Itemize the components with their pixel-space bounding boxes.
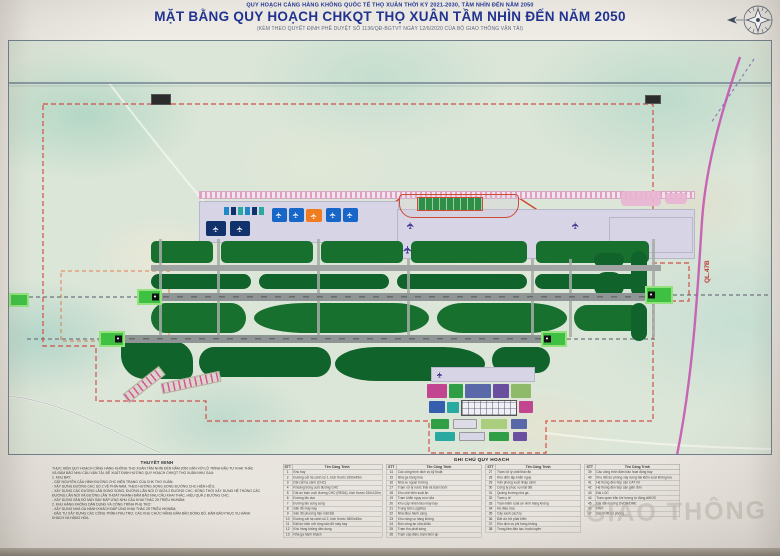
plane-icon: ✈ bbox=[310, 212, 318, 219]
infield-green bbox=[411, 241, 527, 263]
maintenance-stand: ✈ bbox=[206, 221, 226, 236]
cluster-block bbox=[431, 419, 449, 429]
notes-heading: THUYẾT MINH bbox=[52, 460, 262, 465]
poster-paper: QUY HOẠCH CẢNG HÀNG KHÔNG QUỐC TẾ THỌ XU… bbox=[0, 0, 780, 549]
legend-row-name: Trạm cấp điện, trạm biến áp bbox=[397, 532, 482, 537]
taxiway-connector bbox=[317, 239, 320, 337]
widebody-stand: ✈ bbox=[343, 208, 358, 222]
taxiway-connector bbox=[217, 239, 220, 337]
infield-green bbox=[151, 303, 246, 333]
cluster-block bbox=[481, 419, 507, 429]
infield-green bbox=[437, 303, 567, 333]
parallel-taxiway bbox=[151, 265, 661, 271]
infield-green bbox=[151, 274, 251, 289]
legend-group: STTTên Công Trình14Các công trình dịch v… bbox=[386, 464, 482, 538]
cluster-block bbox=[493, 384, 509, 398]
cluster-block bbox=[449, 384, 463, 398]
taxiway-connector bbox=[159, 239, 162, 337]
small-stand bbox=[231, 207, 236, 215]
future-terminal-area bbox=[665, 193, 687, 204]
cluster-block bbox=[489, 432, 509, 441]
landside-cluster: ✈✈✈✈✈✈✈✈✈ bbox=[427, 367, 545, 455]
cluster-block bbox=[429, 401, 445, 413]
cluster-block bbox=[435, 432, 455, 441]
infield-green bbox=[631, 303, 647, 341]
infield-green bbox=[259, 274, 389, 289]
road-label-ql47b: QL.47B bbox=[704, 260, 711, 283]
notes-line: KHÁCH VÀ HÀNG HÓA. bbox=[52, 516, 262, 521]
plane-icon: ✈ bbox=[436, 368, 444, 378]
threshold-marker bbox=[544, 336, 551, 343]
master-plan-map: QL.47B ✈ ✈ ✈ ✈ ✈ ✈ ✈ ✈✈✈✈✈✈✈✈ ✈✈✈✈✈ bbox=[8, 40, 772, 455]
page-title: MẶT BẰNG QUY HOẠCH CHKQT THỌ XUÂN TẦM NH… bbox=[0, 9, 780, 25]
runway-1 bbox=[149, 293, 663, 301]
small-stand bbox=[224, 207, 229, 215]
plane-icon: ✈ bbox=[212, 225, 220, 232]
plane-icon: ✈ bbox=[346, 212, 354, 219]
notes-block: THUYẾT MINH THỰC HIỆN QUY HOẠCH CẢNG HÀN… bbox=[52, 460, 262, 546]
widebody-stand-orange: ✈ bbox=[306, 209, 322, 222]
legend-title: GHI CHÚ QUY HOẠCH bbox=[283, 457, 680, 463]
road-structure bbox=[645, 95, 661, 104]
small-stand bbox=[259, 207, 264, 215]
watermark-text: GIAO THÔNG bbox=[586, 496, 768, 528]
cluster-block bbox=[511, 384, 531, 398]
small-stand bbox=[252, 207, 257, 215]
compass-rose-icon bbox=[720, 1, 778, 39]
runway-threshold bbox=[541, 331, 567, 347]
threshold-marker bbox=[648, 292, 655, 299]
runway-threshold bbox=[9, 293, 29, 307]
legend-row: 26Trạm cấp điện, trạm biến áp bbox=[386, 532, 481, 537]
cluster-block bbox=[465, 384, 491, 398]
cluster-block bbox=[447, 402, 459, 413]
infield-green bbox=[254, 303, 429, 333]
legend-group: STTTên Công Trình27Trạm xử lý chất thải … bbox=[485, 464, 581, 538]
widebody-stand: ✈ bbox=[289, 208, 304, 222]
legend-row-no: 38 bbox=[485, 527, 496, 532]
plane-icon: ✈ bbox=[236, 225, 244, 232]
cluster-block bbox=[453, 419, 477, 429]
plane-icon: ✈ bbox=[292, 212, 300, 219]
cluster-block bbox=[511, 419, 527, 429]
runway-threshold bbox=[99, 331, 125, 347]
infield-green bbox=[397, 274, 527, 289]
small-stand bbox=[245, 207, 250, 215]
legend-row: 38Trung tâm đào tạo, huấn luyện bbox=[485, 527, 580, 532]
road-structure bbox=[151, 94, 171, 105]
runway-threshold bbox=[645, 286, 673, 304]
title-line-1: QUY HOẠCH CẢNG HÀNG KHÔNG QUỐC TẾ THỌ XU… bbox=[0, 2, 780, 8]
passenger-terminal bbox=[417, 197, 483, 211]
cluster-block bbox=[519, 401, 533, 413]
photo-edge bbox=[0, 548, 780, 556]
maintenance-stand: ✈ bbox=[230, 221, 250, 236]
threshold-marker bbox=[152, 294, 159, 301]
plane-icon: ✈ bbox=[275, 212, 283, 219]
small-stand bbox=[238, 207, 243, 215]
cluster-apron bbox=[431, 367, 535, 382]
legend-group: STTTên Công Trình1Khu bay2Đường cất hạ c… bbox=[283, 464, 382, 538]
plane-icon: ✈ bbox=[329, 212, 337, 219]
notes-lines: THỰC HIỆN QUY HOẠCH CẢNG HÀNG KHÔNG THỌ … bbox=[52, 467, 262, 521]
legend-row-name: Trung tâm đào tạo, huấn luyện bbox=[496, 527, 581, 532]
legend-row: 13Nhà ga hành khách bbox=[283, 532, 382, 537]
widebody-stand: ✈ bbox=[326, 208, 341, 222]
cluster-block bbox=[513, 432, 527, 441]
legend-row-name: Nhà ga hành khách bbox=[292, 532, 382, 537]
legend-row-no: 13 bbox=[283, 532, 292, 537]
infield-green bbox=[221, 241, 313, 263]
title-subline: (KÈM THEO QUYẾT ĐỊNH PHÊ DUYỆT SỐ 1136/Q… bbox=[0, 26, 780, 32]
plane-icon: ✈ bbox=[405, 216, 416, 230]
legend-row-no: 26 bbox=[386, 532, 397, 537]
cluster-block bbox=[427, 384, 447, 398]
threshold-marker bbox=[115, 336, 122, 343]
runway-threshold bbox=[137, 289, 162, 305]
title-block: QUY HOẠCH CẢNG HÀNG KHÔNG QUỐC TẾ THỌ XU… bbox=[0, 2, 780, 32]
future-terminal-area bbox=[621, 191, 661, 206]
widebody-stand: ✈ bbox=[272, 208, 287, 222]
cluster-main-building bbox=[461, 400, 517, 416]
plane-icon: ✈ bbox=[570, 216, 581, 230]
infield-green bbox=[321, 241, 403, 263]
runway-2 bbox=[101, 335, 553, 343]
cluster-block bbox=[459, 432, 485, 441]
